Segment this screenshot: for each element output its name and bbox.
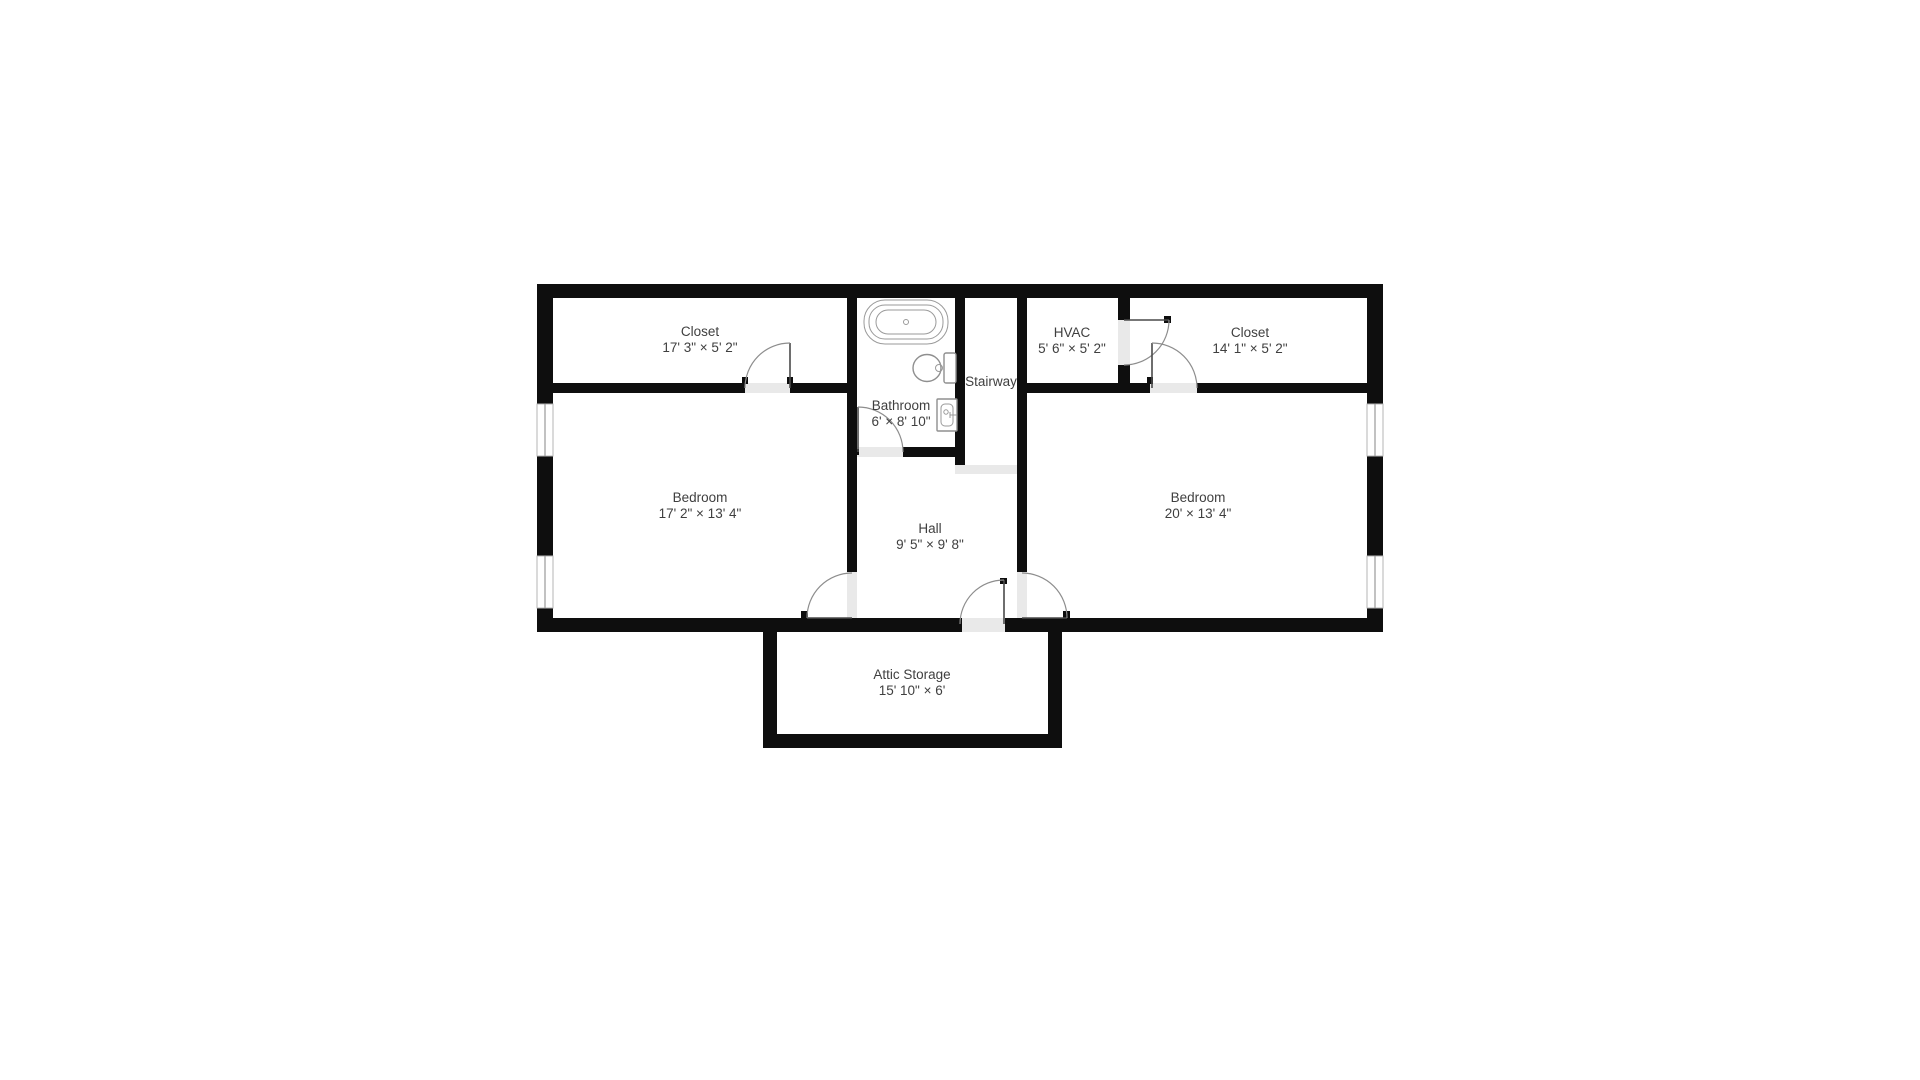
- room-dims: 6' × 8' 10": [871, 414, 930, 429]
- floor-plan: Closet 17' 3" × 5' 2" Bathroom 6' × 8' 1…: [0, 0, 1920, 1080]
- sink-icon: [937, 399, 957, 431]
- window-icon: [1367, 404, 1383, 456]
- room-dims: 15' 10" × 6': [879, 683, 946, 698]
- door-attic-storage: [960, 578, 1007, 624]
- room-label-hvac: HVAC 5' 6" × 5' 2": [1038, 325, 1106, 356]
- room-label-closet-right: Closet 14' 1" × 5' 2": [1212, 325, 1287, 356]
- room-name: Attic Storage: [873, 667, 950, 682]
- room-dims: 14' 1" × 5' 2": [1212, 341, 1287, 356]
- room-label-bedroom-right: Bedroom 20' × 13' 4": [1165, 490, 1232, 521]
- room-dims: 17' 2" × 13' 4": [659, 506, 742, 521]
- door-closet-right: [1147, 343, 1197, 388]
- door-bedroom-left: [801, 573, 852, 618]
- room-label-hall: Hall 9' 5" × 9' 8": [896, 521, 964, 552]
- room-label-stairway: Stairway: [965, 374, 1017, 389]
- window-icon: [1367, 556, 1383, 608]
- room-labels: Closet 17' 3" × 5' 2" Bathroom 6' × 8' 1…: [659, 324, 1288, 698]
- room-dims: 5' 6" × 5' 2": [1038, 341, 1106, 356]
- room-name: Bathroom: [872, 398, 931, 413]
- window-icon: [537, 404, 553, 456]
- room-name: Stairway: [965, 374, 1017, 389]
- room-dims: 20' × 13' 4": [1165, 506, 1232, 521]
- door-hvac: [1124, 316, 1171, 365]
- toilet-icon: [913, 353, 956, 383]
- room-name: Closet: [681, 324, 720, 339]
- room-name: HVAC: [1054, 325, 1091, 340]
- window-icon: [537, 556, 553, 608]
- room-name: Bedroom: [673, 490, 728, 505]
- door-bedroom-right: [1022, 573, 1070, 618]
- room-dims: 17' 3" × 5' 2": [662, 340, 737, 355]
- room-name: Hall: [918, 521, 941, 536]
- bathtub-icon: [864, 300, 948, 344]
- room-dims: 9' 5" × 9' 8": [896, 537, 964, 552]
- floor-plan-page: Closet 17' 3" × 5' 2" Bathroom 6' × 8' 1…: [0, 0, 1920, 1080]
- room-label-attic-storage: Attic Storage 15' 10" × 6': [873, 667, 950, 698]
- room-label-closet-left: Closet 17' 3" × 5' 2": [662, 324, 737, 355]
- room-label-bedroom-left: Bedroom 17' 2" × 13' 4": [659, 490, 742, 521]
- room-name: Closet: [1231, 325, 1270, 340]
- door-closet-left: [742, 343, 793, 388]
- room-name: Bedroom: [1171, 490, 1226, 505]
- room-label-bathroom: Bathroom 6' × 8' 10": [871, 398, 930, 429]
